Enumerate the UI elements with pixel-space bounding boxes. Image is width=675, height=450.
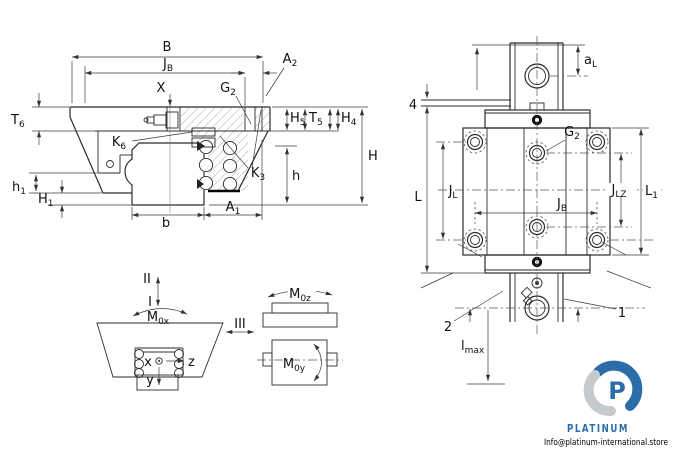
label-T6: T6 <box>10 113 25 130</box>
mounting-holes <box>464 131 608 251</box>
label-part-4: 4 <box>409 98 417 113</box>
label-I: I <box>148 295 152 310</box>
label-H: H <box>368 149 378 164</box>
label-JB-top: JB <box>556 197 567 214</box>
label-T5: T5 <box>308 111 323 128</box>
logo-email-text: Info@platinum-international.store <box>544 438 668 448</box>
label-H1: H1 <box>38 192 54 209</box>
label-aL: aL <box>584 53 597 70</box>
label-b: b <box>162 216 170 231</box>
label-part-1: 1 <box>618 306 626 321</box>
label-II: II <box>143 272 151 287</box>
label-y: y <box>146 373 154 388</box>
m0y-figure <box>257 340 343 385</box>
label-K3: K3 <box>251 166 265 183</box>
label-h1: h1 <box>12 180 26 197</box>
label-M0x: M0x <box>147 310 170 327</box>
cross-section-view: B JB A2 X G2 T6 K6 H5 T5 H4 H K3 h h1 H1… <box>10 40 378 231</box>
label-X: X <box>157 81 166 96</box>
top-view: aL 4 G2 L JL JB JLZ L1 2 1 lmax <box>409 36 662 384</box>
label-H4: H4 <box>341 111 357 128</box>
grease-fitting-icon <box>519 278 542 305</box>
label-G2-section: G2 <box>220 81 236 98</box>
label-part-2: 2 <box>444 320 452 335</box>
platinum-logo: P PLATINUM Info@platinum-international.s… <box>544 366 668 448</box>
logo-letter: P <box>608 377 626 405</box>
label-A2: A2 <box>283 52 298 69</box>
seal-pin-circle <box>107 161 114 168</box>
label-L: L <box>414 190 422 205</box>
label-H5: H5 <box>290 111 306 128</box>
label-JL: JL <box>448 184 458 201</box>
logo-brand-text: PLATINUM <box>567 422 629 435</box>
label-M0y: M0y <box>283 357 306 374</box>
label-B: B <box>163 40 172 55</box>
moment-M0x-arrow <box>133 308 187 316</box>
drawing-canvas: B JB A2 X G2 T6 K6 H5 T5 H4 H K3 h h1 H1… <box>0 0 675 450</box>
label-z: z <box>188 355 195 370</box>
label-JB: JB <box>162 57 173 74</box>
label-A1: A1 <box>226 200 241 217</box>
label-h: h <box>292 169 300 184</box>
technical-drawing: B JB A2 X G2 T6 K6 H5 T5 H4 H K3 h h1 H1… <box>0 0 675 450</box>
label-K6: K6 <box>112 135 127 152</box>
load-schematic: II I III M0x M0z M0y x y z <box>97 272 343 390</box>
label-III: III <box>234 317 246 332</box>
label-x: x <box>144 355 152 370</box>
